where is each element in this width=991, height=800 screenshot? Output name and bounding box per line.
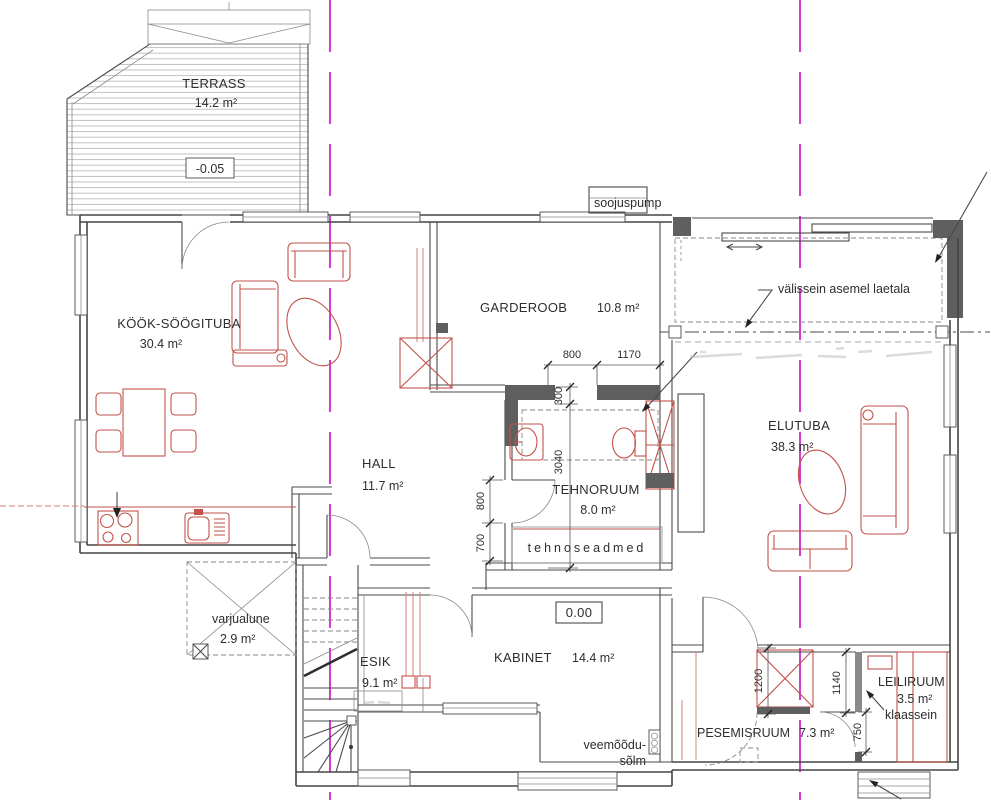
wc-wall-fill-right	[597, 385, 660, 400]
post-marker-right	[936, 326, 948, 338]
dim-glass-wall: 1140	[831, 671, 843, 695]
deck-boards	[67, 44, 308, 215]
dim-hall-door: 800	[475, 492, 487, 510]
dim-garderoob-door: 800	[563, 349, 581, 361]
dim-wc-offset: 300	[553, 387, 565, 405]
toilet	[613, 428, 636, 458]
room-label-garderoob: GARDEROOB	[480, 300, 567, 315]
label-soojuspump: soojuspump	[594, 196, 661, 210]
room-area-kabinet: 14.4 m²	[572, 651, 614, 665]
level-value-terrass: -0.05	[196, 162, 225, 176]
dim-garderoob-wall: 1170	[617, 349, 641, 361]
room-area-varjualune: 2.9 m²	[220, 632, 255, 646]
service-and-steps	[518, 730, 930, 799]
post-marker-left	[669, 326, 681, 338]
dim-wc-depth: 3040	[553, 450, 565, 474]
room-label-leiliruum: LEILIRUUM	[878, 675, 945, 689]
exterior-steps-east	[858, 772, 930, 798]
room-area-garderoob: 10.8 m²	[597, 301, 639, 315]
glass-wall-fill	[855, 652, 862, 712]
sliding-panel-1	[812, 224, 932, 232]
wc-door-swing	[512, 480, 555, 523]
dining-table	[123, 389, 165, 456]
room-label-varjualune: varjualune	[212, 612, 270, 626]
shower-wall-fill	[757, 707, 810, 714]
room-area-pesemisruum: 7.3 m²	[799, 726, 834, 740]
leader-arrows	[642, 172, 987, 710]
exterior-steps-south	[518, 772, 617, 790]
column-fill	[673, 217, 691, 236]
room-label-elutuba: ELUTUBA	[768, 418, 830, 433]
floor-plan-drawing: TERRASS 14.2 m² -0.05 soojuspump välisse…	[0, 0, 991, 800]
entry-door-swing	[182, 222, 229, 269]
room-area-hall: 11.7 m²	[362, 479, 403, 493]
roof-rect	[148, 10, 310, 44]
wall-block-small	[436, 323, 448, 333]
kitchen-fixtures	[0, 492, 296, 545]
room-area-tehnoruum: 8.0 m²	[580, 503, 615, 517]
room-label-esik: ESIK	[360, 654, 391, 669]
dim-shower: 1200	[753, 669, 765, 693]
room-label-pesemisruum: PESEMISRUUM	[697, 726, 790, 740]
covered-terrace-zone	[660, 217, 990, 342]
corner-leader-head	[935, 254, 942, 263]
roof-outline	[148, 2, 310, 44]
laetala-leader-line	[748, 290, 772, 323]
windows	[75, 212, 956, 786]
chair	[96, 393, 121, 415]
wc-wall-fill-left	[505, 385, 555, 400]
floor-drain-dashed	[740, 748, 758, 762]
terrace	[67, 44, 308, 215]
room-area-elutuba: 38.3 m²	[771, 440, 813, 454]
drainboard-hatch	[214, 519, 225, 535]
toilet-cistern	[635, 431, 646, 456]
chair	[171, 393, 196, 415]
shower	[740, 650, 813, 762]
room-label-terrass: TERRASS	[182, 76, 246, 91]
duct-dark-box	[646, 473, 674, 488]
window-kabinet	[443, 703, 537, 714]
label-tehnoseadmed: tehnoseadmed	[528, 541, 647, 555]
tv-cabinet	[678, 394, 704, 532]
chair	[96, 430, 121, 452]
esik-door-swing	[327, 515, 370, 558]
wc-wall-fill-vert	[505, 400, 518, 446]
laetala-leader-head	[745, 319, 753, 328]
erased-text-artifact	[690, 348, 932, 358]
canopy-dashed-outline	[675, 238, 942, 322]
kabinet-door-swing	[430, 595, 472, 637]
slide-direction-arrow	[727, 244, 762, 250]
sliding-panel-2	[722, 233, 849, 241]
roof-gable-lines	[148, 2, 310, 43]
stair-winder-fan	[304, 721, 351, 772]
stove-arrow-head	[113, 508, 121, 518]
glass-wall-stub	[855, 752, 862, 762]
sauna-heater	[868, 656, 892, 669]
room-area-leiliruum: 3.5 m²	[897, 692, 932, 706]
radiator-box-2	[417, 676, 430, 688]
room-label-tehnoruum: TEHNORUUM	[552, 482, 639, 497]
room-area-kook: 30.4 m²	[140, 337, 182, 351]
pesemisruum-door-swing	[703, 597, 758, 652]
corner-wall-fill-v	[947, 238, 963, 318]
sauna-benches	[868, 652, 947, 762]
dim-sauna-door: 750	[852, 723, 864, 741]
sofa-top	[288, 243, 350, 281]
label-veemoodu-2: sõlm	[620, 754, 646, 768]
room-label-hall: HALL	[362, 456, 396, 471]
chair	[171, 430, 196, 452]
dining-set	[96, 389, 196, 456]
radiator-box-1	[402, 676, 415, 688]
radiator-kitchen	[417, 248, 423, 342]
sofa-chaise	[233, 350, 287, 366]
sofa-elutuba-large	[861, 406, 908, 534]
label-klaassein: klaassein	[885, 708, 937, 722]
tap	[194, 509, 203, 515]
pipes-pesemisruum	[682, 652, 696, 760]
radiator-esik	[406, 592, 420, 676]
overhead-dashed-zone	[522, 410, 658, 460]
dim-hall-wall: 700	[475, 534, 487, 552]
axis-grid-lines	[330, 0, 800, 800]
erased-label-box	[354, 691, 402, 711]
stair-pivot-dot	[349, 745, 353, 749]
newel-post	[347, 716, 356, 725]
water-meter-unit	[649, 730, 660, 754]
level-value-zero: 0.00	[566, 605, 593, 620]
room-label-kabinet: KABINET	[494, 650, 552, 665]
room-area-esik: 9.1 m²	[362, 676, 397, 690]
label-veemoodu-1: veemõõdu-	[583, 738, 646, 752]
floor-plan-page: TERRASS 14.2 m² -0.05 soojuspump välisse…	[0, 0, 991, 800]
label-valissein: välissein asemel laetala	[778, 282, 910, 296]
sauna-bench	[897, 652, 947, 762]
room-area-terrass: 14.2 m²	[195, 96, 237, 110]
room-label-kook: KÖÖK-SÖÖGITUBA	[117, 316, 240, 331]
sink-basin	[188, 517, 209, 540]
